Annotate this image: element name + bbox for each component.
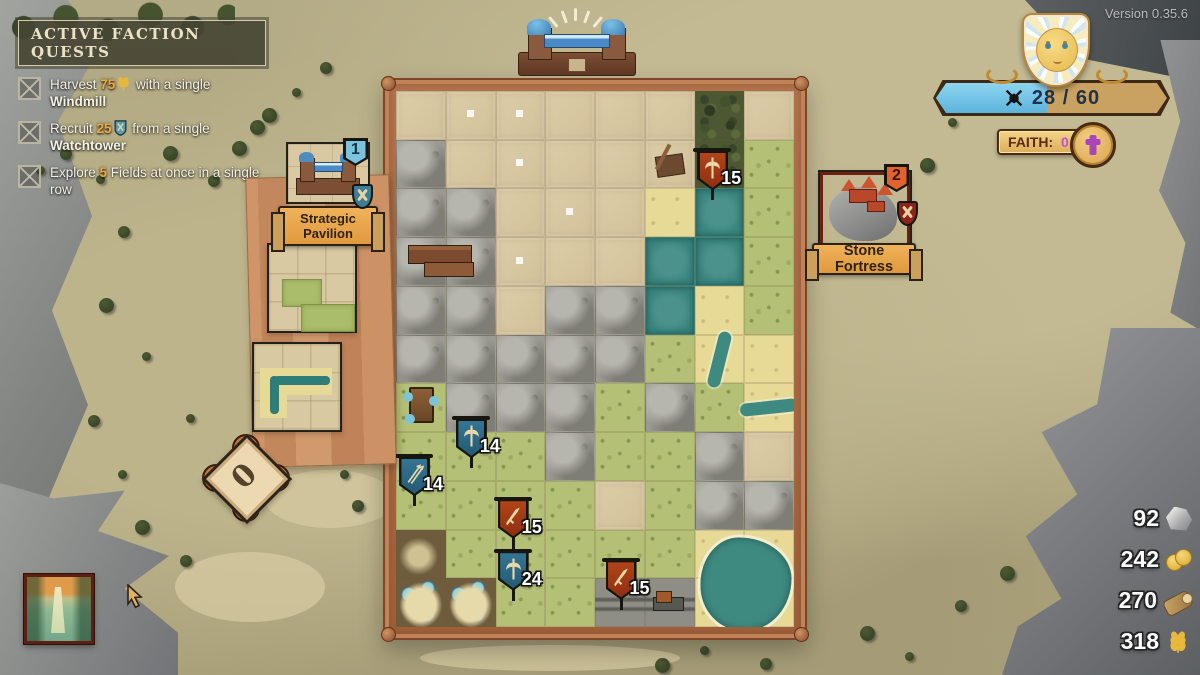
quest-amount: 75 xyxy=(100,77,115,92)
unit-banner-red[interactable]: 15 xyxy=(605,558,639,610)
board-tile-mountain-r5c1[interactable] xyxy=(446,335,496,384)
background-tree xyxy=(118,470,127,479)
board-tile-unexplored-r0c7[interactable] xyxy=(744,91,794,140)
board-tile-unexplored-r0c0[interactable] xyxy=(396,91,446,140)
background-tree xyxy=(99,298,114,313)
gold-scroll-ornament xyxy=(986,66,1018,84)
axe-icon xyxy=(503,556,524,582)
board-tile-mountain-r6c5[interactable] xyxy=(645,383,695,432)
board-tile-grass-r4c7[interactable] xyxy=(744,286,794,335)
board-tile-water-r3c6[interactable] xyxy=(695,237,745,286)
board-tile-mountain-r4c3[interactable] xyxy=(545,286,595,335)
sand-patch xyxy=(420,645,680,671)
board-tile-grass-r10c3[interactable] xyxy=(545,578,595,627)
resource-row-wood: 270 xyxy=(1119,587,1192,614)
board-tile-unexplored-r2c2[interactable] xyxy=(496,188,546,237)
board-tile-sand-r10c7[interactable] xyxy=(744,578,794,627)
pavilion-card-name: Strategic Pavilion xyxy=(278,206,378,246)
pavilion-roof xyxy=(544,34,610,48)
wood-count: 270 xyxy=(1119,587,1157,614)
board-tile-unexplored-r3c4[interactable] xyxy=(595,237,645,286)
board-tile-grass-r7c4[interactable] xyxy=(595,432,645,481)
board-tile-unexplored-r7c7[interactable] xyxy=(744,432,794,481)
gold-scroll-ornament xyxy=(1096,66,1128,84)
background-tree xyxy=(135,520,150,535)
board-tile-unexplored-r1c3[interactable] xyxy=(545,140,595,189)
resource-panel: 92 242 270 318 xyxy=(1119,505,1192,655)
board-tile-forest-r0c6[interactable] xyxy=(695,91,745,140)
background-tree xyxy=(920,158,935,173)
background-tree xyxy=(320,62,332,74)
background-tree xyxy=(88,415,100,427)
resource-row-stone: 92 xyxy=(1133,505,1192,532)
board-tile-grass-r7c2[interactable] xyxy=(496,432,546,481)
board-tile-mountain-r6c2[interactable] xyxy=(496,383,546,432)
progress-bar-track: 28 / 60 xyxy=(936,83,1167,113)
event-card[interactable] xyxy=(24,574,94,644)
background-tree xyxy=(340,470,349,479)
quest-checkbox[interactable] xyxy=(18,77,41,100)
board-tile-mountain-r2c1[interactable] xyxy=(446,188,496,237)
board-tile-unexplored-r8c4[interactable] xyxy=(595,481,645,530)
board-tile-mountain-r3c1[interactable] xyxy=(446,237,496,286)
frame-ornament xyxy=(381,627,396,642)
banner-count: 15 xyxy=(522,517,542,538)
board-tile-unexplored-r0c5[interactable] xyxy=(645,91,695,140)
quest-panel: ACTIVE FACTION QUESTS Harvest 75 with a … xyxy=(18,20,266,198)
resource-row-wheat: 318 xyxy=(1121,628,1192,655)
board-tile-mountain-r5c3[interactable] xyxy=(545,335,595,384)
board-tile-sand-r5c6[interactable] xyxy=(695,335,745,384)
board-tile-unexplored-r1c4[interactable] xyxy=(595,140,645,189)
board-tile-sand-r5c7[interactable] xyxy=(744,335,794,384)
quest-amount: 25 xyxy=(97,121,112,136)
deck-counter[interactable]: 0 xyxy=(206,438,282,514)
background-tree xyxy=(860,626,875,641)
board-tile-grass-r3c7[interactable] xyxy=(744,237,794,286)
axe-icon xyxy=(702,155,723,181)
board-tile-grass-r9c1[interactable] xyxy=(446,530,496,579)
board-tile-dirt-r9c0[interactable] xyxy=(396,530,446,579)
quest-title-text: ACTIVE FACTION QUESTS xyxy=(31,25,200,61)
board-tile-sand-r2c5[interactable] xyxy=(645,188,695,237)
background-tree xyxy=(655,658,670,673)
background-tree xyxy=(955,600,967,612)
board-tile-sand-r9c6[interactable] xyxy=(695,530,745,579)
banner-pole xyxy=(693,148,731,152)
banner-count: 15 xyxy=(721,168,741,189)
quest-amount: 5 xyxy=(100,165,108,180)
wheat-count: 318 xyxy=(1121,628,1159,655)
board-tile-grass-r6c4[interactable] xyxy=(595,383,645,432)
board-tile-sand-r6c7[interactable] xyxy=(744,383,794,432)
pavilion-steps xyxy=(568,58,586,72)
axe-icon xyxy=(461,423,482,449)
faith-label: FAITH: xyxy=(1008,134,1053,150)
board-tile-mountain-r1c0[interactable] xyxy=(396,140,446,189)
background-tree xyxy=(352,500,364,512)
board-tile-mountain-r4c1[interactable] xyxy=(446,286,496,335)
board-tile-grass-r8c1[interactable] xyxy=(446,481,496,530)
wheat-icon xyxy=(116,76,131,92)
faith-value: 0 xyxy=(1061,134,1069,150)
banner-count: 24 xyxy=(522,569,542,590)
board-tile-grass-r7c5[interactable] xyxy=(645,432,695,481)
background-tree xyxy=(760,658,772,670)
banner-pole xyxy=(494,549,532,553)
fortress-card-name: Stone Fortress xyxy=(812,243,916,275)
faith-counter: FAITH: 0 xyxy=(997,129,1097,155)
background-tree xyxy=(948,118,957,127)
sun-emblem xyxy=(1022,13,1090,87)
board-tile-dirt-r10c1[interactable] xyxy=(446,578,496,627)
board-tile-grass-r6c6[interactable] xyxy=(695,383,745,432)
board-tile-grass-r6c0[interactable] xyxy=(396,383,446,432)
board-tile-unexplored-r3c3[interactable] xyxy=(545,237,595,286)
banner-count: 14 xyxy=(423,474,443,495)
board-tile-road-r10c5[interactable] xyxy=(645,578,695,627)
quest-item-recruit: Recruit 25 from a single Watchtower xyxy=(18,120,266,154)
board-tile-unexplored-r2c3[interactable] xyxy=(545,188,595,237)
frame-ornament xyxy=(794,76,809,91)
quest-item-explore: Explore 5 Fields at once in a single row xyxy=(18,164,266,198)
background-tree xyxy=(186,414,195,423)
board-tile-grass-r8c3[interactable] xyxy=(545,481,595,530)
game-screen: 151414152415 ACTIVE FACTION QUESTS Harve… xyxy=(0,0,1200,675)
board-tile-mountain-r2c0[interactable] xyxy=(396,188,446,237)
score-value: 28 / 60 xyxy=(1032,87,1100,110)
game-board: 151414152415 xyxy=(383,78,807,640)
board-tile-unexplored-r4c2[interactable] xyxy=(496,286,546,335)
board-tile-unexplored-r3c2[interactable] xyxy=(496,237,546,286)
board-tile-grass-r1c7[interactable] xyxy=(744,140,794,189)
coins-count: 242 xyxy=(1121,546,1159,573)
resource-row-coins: 242 xyxy=(1121,546,1192,573)
board-tile-unexplored-r0c2[interactable] xyxy=(496,91,546,140)
board-tile-mountain-r5c4[interactable] xyxy=(595,335,645,384)
board-tile-unexplored-r1c5[interactable] xyxy=(645,140,695,189)
unit-banner-blue[interactable]: 14 xyxy=(455,416,489,468)
unit-banner-red[interactable]: 15 xyxy=(696,148,730,200)
quest-text: Explore 5 Fields at once in a single row xyxy=(50,164,266,198)
quest-panel-title: ACTIVE FACTION QUESTS xyxy=(18,20,266,66)
background-tree xyxy=(142,352,151,361)
unit-banner-blue[interactable]: 14 xyxy=(398,454,432,506)
board-tile-unexplored-r0c3[interactable] xyxy=(545,91,595,140)
banner-pole xyxy=(494,497,532,501)
board-tile-grass-r5c5[interactable] xyxy=(645,335,695,384)
frame-ornament xyxy=(381,76,396,91)
stone-count: 92 xyxy=(1133,505,1159,532)
unit-banner-red[interactable]: 15 xyxy=(497,497,531,549)
board-tile-unexplored-r2c4[interactable] xyxy=(595,188,645,237)
board-tile-mountain-r5c0[interactable] xyxy=(396,335,446,384)
board-tile-water-r3c5[interactable] xyxy=(645,237,695,286)
quest-text: Harvest 75 with a single Windmill xyxy=(50,76,266,110)
board-tile-mountain-r4c0[interactable] xyxy=(396,286,446,335)
quest-checkbox[interactable] xyxy=(18,165,41,188)
faith-medallion xyxy=(1070,122,1116,168)
banner-count: 14 xyxy=(480,436,500,457)
background-tree xyxy=(180,555,192,567)
board-tile-grass-r9c3[interactable] xyxy=(545,530,595,579)
board-tile-grass-r9c5[interactable] xyxy=(645,530,695,579)
pavilion-building[interactable] xyxy=(512,18,640,78)
board-tile-sand-r9c7[interactable] xyxy=(744,530,794,579)
board-tile-grass-r2c7[interactable] xyxy=(744,188,794,237)
board-tile-mountain-r7c6[interactable] xyxy=(695,432,745,481)
board-tile-mountain-r5c2[interactable] xyxy=(496,335,546,384)
board-tile-mountain-r6c3[interactable] xyxy=(545,383,595,432)
sword-icon xyxy=(611,565,632,591)
board-tile-water-r4c5[interactable] xyxy=(645,286,695,335)
recruit-shield-icon xyxy=(113,120,128,136)
board-grid: 151414152415 xyxy=(396,91,794,627)
board-tile-unexplored-r0c4[interactable] xyxy=(595,91,645,140)
stone-icon xyxy=(1166,507,1192,531)
sword-icon xyxy=(503,504,524,530)
banner-pole xyxy=(452,416,490,420)
tile-preview-grass[interactable] xyxy=(267,243,357,333)
wood-icon xyxy=(1162,589,1195,617)
board-tile-sand-r4c6[interactable] xyxy=(695,286,745,335)
quest-text: Recruit 25 from a single Watchtower xyxy=(50,120,266,154)
arrows-icon xyxy=(404,461,425,487)
board-tile-unexplored-r1c2[interactable] xyxy=(496,140,546,189)
background-tree xyxy=(700,646,709,655)
attack-shield-icon xyxy=(897,201,918,226)
battle-icon xyxy=(1003,87,1025,109)
background-tree xyxy=(118,226,130,238)
coins-icon xyxy=(1166,548,1192,572)
sand-patch xyxy=(175,552,325,622)
board-tile-unexplored-r1c1[interactable] xyxy=(446,140,496,189)
background-tree xyxy=(905,652,914,661)
board-tile-mountain-r3c0[interactable] xyxy=(396,237,446,286)
deck-count: 0 xyxy=(190,422,297,529)
unit-banner-blue[interactable]: 24 xyxy=(497,549,531,601)
version-label: Version 0.35.6 xyxy=(1105,6,1188,21)
board-tile-sand-r10c6[interactable] xyxy=(695,578,745,627)
sun-face xyxy=(1036,28,1078,72)
board-tile-mountain-r7c3[interactable] xyxy=(545,432,595,481)
background-tree xyxy=(1000,566,1015,581)
board-tile-mountain-r8c7[interactable] xyxy=(744,481,794,530)
banner-pole xyxy=(602,558,640,562)
quest-item-harvest: Harvest 75 with a single Windmill xyxy=(18,76,266,110)
tile-preview-river[interactable] xyxy=(252,342,342,432)
cross-icon xyxy=(1090,135,1097,155)
board-tile-unexplored-r0c1[interactable] xyxy=(446,91,496,140)
board-tile-mountain-r4c4[interactable] xyxy=(595,286,645,335)
wheat-icon xyxy=(1166,630,1192,654)
frame-ornament xyxy=(794,627,809,642)
board-tile-mountain-r8c6[interactable] xyxy=(695,481,745,530)
quest-checkbox[interactable] xyxy=(18,121,41,144)
board-tile-grass-r8c5[interactable] xyxy=(645,481,695,530)
banner-count: 15 xyxy=(630,578,650,599)
mouse-cursor xyxy=(126,584,148,617)
board-tile-dirt-r10c0[interactable] xyxy=(396,578,446,627)
background-tree xyxy=(292,88,301,97)
banner-pole xyxy=(396,454,433,458)
